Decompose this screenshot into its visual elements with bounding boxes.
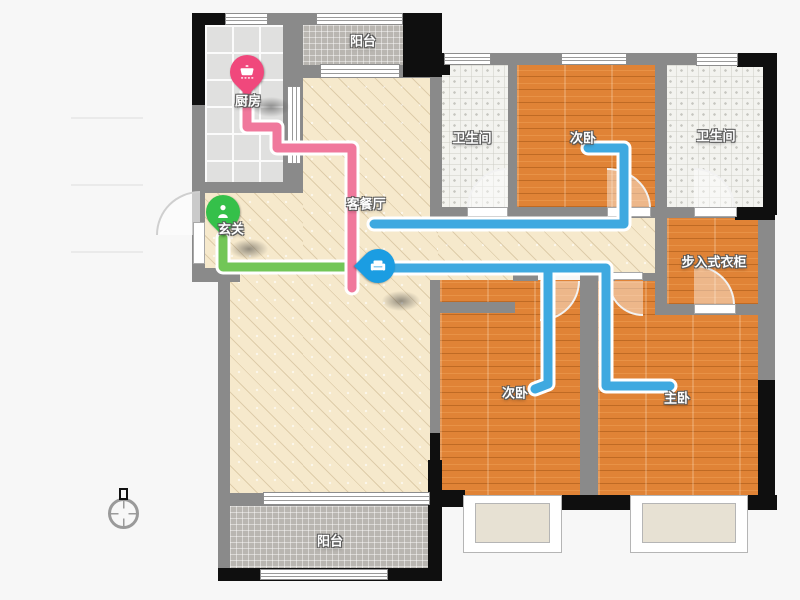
room-label-entrance: 玄关 [218, 219, 244, 238]
door-threshold [612, 272, 643, 280]
wall [513, 273, 538, 281]
wall [758, 215, 775, 380]
room-label-living-dining: 客餐厅 [346, 194, 385, 213]
floor-corridor [438, 218, 655, 273]
wall-black [735, 207, 775, 220]
room-label-bedroom-bottom: 次卧 [502, 383, 528, 402]
wall-black [598, 495, 632, 510]
wall [655, 65, 667, 207]
sofa-icon [369, 257, 387, 275]
door-leaf [607, 207, 651, 217]
room-label-bathroom-left: 卫生间 [452, 128, 491, 147]
window [561, 53, 627, 65]
door-leaf [694, 207, 737, 217]
window [696, 53, 738, 66]
wall-black [192, 13, 205, 105]
wall [580, 273, 598, 497]
wall-black [758, 380, 775, 510]
pin-shadow [228, 238, 270, 260]
wall [438, 302, 515, 313]
window [263, 492, 430, 505]
door-leaf [467, 207, 508, 217]
wall [205, 182, 303, 193]
door-leaf [694, 304, 736, 314]
pot-icon [238, 63, 256, 81]
room-label-balcony-top: 阳台 [350, 31, 376, 50]
window [260, 569, 388, 580]
wall [430, 280, 440, 433]
room-label-balcony-bottom: 阳台 [317, 531, 343, 550]
room-label-bathroom-right: 卫生间 [696, 126, 735, 145]
room-label-bedroom-top: 次卧 [570, 128, 596, 147]
floorplan: 厨房 阳台 卫生间 次卧 卫生间 客餐厅 玄关 步入式衣柜 次卧 主卧 阳台 来… [0, 0, 800, 600]
north-marker-icon [119, 488, 128, 500]
wall [218, 272, 230, 575]
compass-icon [108, 498, 139, 529]
window [444, 53, 491, 65]
wall-black [763, 53, 777, 215]
wall-black [560, 495, 600, 510]
wall [643, 273, 657, 281]
wall-black [745, 495, 777, 510]
window [316, 13, 403, 25]
entrance-door-leaf [193, 222, 205, 264]
wall [192, 268, 240, 282]
room-label-kitchen: 厨房 [235, 91, 261, 110]
wall [508, 65, 517, 207]
wall [655, 207, 667, 308]
bay-window [630, 495, 748, 553]
room-label-master-bedroom: 主卧 [664, 388, 690, 407]
floor-living-left [230, 273, 303, 503]
pin-shadow [380, 290, 422, 312]
bay-window [463, 495, 562, 553]
window [320, 64, 400, 78]
wall-black [428, 460, 442, 572]
window [225, 13, 268, 25]
wall [430, 53, 442, 218]
room-label-walkin-closet: 步入式衣柜 [681, 252, 746, 271]
